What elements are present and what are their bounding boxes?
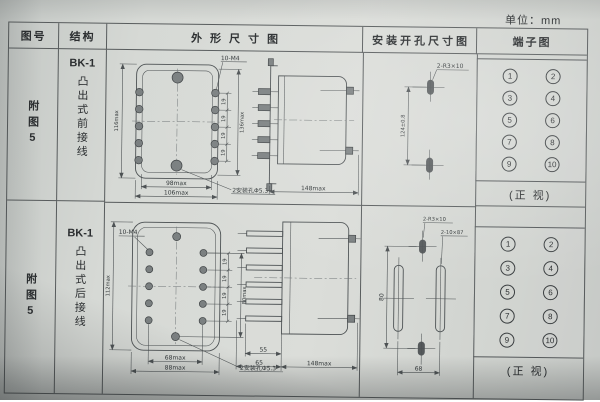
- svg-text:55: 55: [259, 347, 267, 354]
- svg-text:19: 19: [221, 132, 227, 139]
- terminal-number: 9: [499, 333, 514, 348]
- terminal-number: 1: [503, 68, 518, 83]
- svg-text:88max: 88max: [165, 364, 186, 371]
- terminal-number: 2: [544, 237, 559, 252]
- dim-width-inner: 68max: [148, 324, 202, 365]
- row2-install-drawing: 80 68 2-R3×10 2-10×87: [359, 205, 476, 398]
- svg-text:2安装孔Φ5.3: 2安装孔Φ5.3: [232, 186, 268, 194]
- terminal-number: 4: [543, 261, 558, 276]
- svg-text:106max: 106max: [164, 189, 189, 196]
- terminal-number: 8: [543, 309, 558, 324]
- svg-text:2-R3×10: 2-R3×10: [437, 63, 464, 70]
- dim-height-right: 80max: [179, 253, 248, 338]
- dim-hole-pitch: 124±0.8: [400, 87, 426, 165]
- row1-terminal-diagram: 1 2 3 4 5 6 7 8 9 10 (正 视): [475, 54, 587, 207]
- svg-text:19: 19: [222, 292, 228, 299]
- svg-text:10-M4: 10-M4: [119, 229, 138, 236]
- svg-text:148max: 148max: [301, 185, 326, 192]
- terminal-number: 10: [542, 333, 557, 348]
- row1-structure: BK-1 凸出式前接线: [57, 49, 107, 202]
- terminal-number: 6: [543, 285, 558, 300]
- svg-text:65: 65: [255, 360, 263, 367]
- svg-text:19: 19: [221, 98, 227, 105]
- rear-pins: [237, 231, 283, 322]
- label-screws: 10-M4: [216, 55, 246, 89]
- label-install-holes: 2-R3×10: [433, 63, 469, 80]
- terminal-number: 7: [502, 134, 517, 149]
- row1-fig-no: 附图5: [7, 49, 59, 202]
- terminal-number: 2: [546, 69, 561, 84]
- svg-text:19: 19: [222, 275, 228, 282]
- terminal-caption: (正 视): [509, 186, 552, 203]
- mount-hole-bottom: [171, 160, 182, 171]
- svg-text:136max: 136max: [239, 112, 245, 133]
- terminal-box: 1 2 3 4 5 6 7 8 9 10: [473, 226, 585, 358]
- relay-side-view: 55 65 148max: [236, 221, 361, 371]
- label-mount-holes: 2安装孔Φ5.3: [181, 170, 275, 195]
- label-mount-holes: 2安装孔Φ5.3: [179, 340, 283, 373]
- row2-outline-svg: 10-M4 112max 19: [103, 202, 361, 397]
- relay-side-view: 148max: [251, 59, 360, 196]
- dim-pin-overall: 65: [236, 320, 282, 370]
- terminal-caption: (正 视): [507, 363, 550, 380]
- side-mount-studs: [318, 235, 361, 323]
- dim-pin-length: 55: [245, 323, 282, 370]
- svg-text:112max: 112max: [105, 275, 111, 296]
- left-terminal-screws: [145, 249, 153, 324]
- svg-text:19: 19: [222, 258, 228, 265]
- row1-install-drawing: 124±0.8 2-R3×10: [361, 53, 478, 207]
- row2-structure: BK-1 凸出式后接线: [55, 201, 105, 394]
- svg-text:80max: 80max: [242, 286, 248, 304]
- svg-text:68: 68: [415, 366, 423, 373]
- mount-hole-bottom: [171, 333, 179, 341]
- svg-text:2-R3×10: 2-R3×10: [423, 217, 446, 223]
- label-big-slots: 2-10×87: [440, 230, 467, 264]
- header-structure: 结构: [59, 23, 107, 50]
- row1-outline-drawing: 116max 19 19 19 19: [105, 50, 364, 206]
- header-fig-no: 图号: [9, 23, 59, 50]
- svg-text:2-10×87: 2-10×87: [441, 230, 464, 236]
- right-terminal-screws: [199, 249, 207, 324]
- svg-text:19: 19: [222, 309, 228, 316]
- row2-model-label: BK-1: [67, 227, 93, 239]
- row2-terminal-diagram: 1 2 3 4 5 6 7 8 9 10 (正 视): [473, 206, 585, 399]
- row1-structure-label: 凸出式前接线: [73, 75, 90, 159]
- mount-hole-top: [173, 233, 181, 241]
- dim-terminal-pitch: 19 19 19 19: [219, 92, 232, 163]
- row2-structure-label: 凸出式后接线: [71, 245, 88, 329]
- spec-table: 图号 结构 外形尺寸图 安装开孔尺寸图 端子图 附图5 BK-1 凸出式前接线: [4, 22, 589, 401]
- svg-text:98max: 98max: [166, 180, 187, 187]
- svg-text:68max: 68max: [165, 354, 186, 361]
- header-terminal-diagram: 端子图: [477, 28, 587, 55]
- install-hole-top: [408, 230, 436, 261]
- install-slot-right: [425, 258, 456, 340]
- svg-text:116max: 116max: [114, 110, 120, 131]
- terminal-number: 4: [545, 91, 560, 106]
- terminal-box: 1 2 3 4 5 6 7 8 9 10: [475, 58, 587, 182]
- mount-hole-top: [172, 72, 183, 83]
- terminal-number: 6: [545, 113, 560, 128]
- svg-text:19: 19: [221, 149, 227, 156]
- dim-hole-pitch-vertical: 80: [378, 246, 417, 348]
- install-hole-top: [412, 71, 444, 101]
- terminal-number: 10: [544, 157, 559, 172]
- row1-install-svg: 124±0.8 2-R3×10: [361, 53, 477, 206]
- terminal-number: 3: [500, 261, 515, 276]
- install-slot-left: [383, 257, 414, 339]
- terminal-number: 3: [502, 90, 517, 105]
- header-outline-dims: 外形尺寸图: [107, 24, 363, 53]
- dim-depth: 148max: [281, 322, 358, 371]
- svg-text:124±0.8: 124±0.8: [400, 115, 406, 138]
- row1-outline-svg: 116max 19 19 19 19: [105, 50, 363, 205]
- row2-outline-drawing: 10-M4 112max 19: [103, 202, 362, 397]
- svg-text:19: 19: [221, 115, 227, 122]
- svg-text:148max: 148max: [307, 360, 332, 367]
- row2-fig-no: 附图5: [5, 201, 57, 394]
- document-sheet: 单位：mm 图号 结构 外形尺寸图 安装开孔尺寸图 端子图 附图5 BK-1 凸…: [3, 5, 592, 402]
- row2-install-svg: 80 68 2-R3×10 2-10×87: [359, 205, 475, 398]
- terminal-number: 7: [500, 309, 515, 324]
- row1-model-label: BK-1: [69, 57, 95, 69]
- install-hole-bottom: [411, 149, 443, 179]
- terminal-number: 5: [500, 285, 515, 300]
- row1-fig-label: 附图5: [24, 100, 41, 149]
- terminal-number: 9: [501, 156, 516, 171]
- terminal-number: 5: [502, 112, 517, 127]
- svg-text:80: 80: [378, 293, 385, 301]
- side-terminal-screws: [252, 89, 279, 159]
- terminal-number: 8: [545, 135, 560, 150]
- row2-fig-label: 附图5: [22, 272, 39, 321]
- unit-label: 单位：mm: [505, 12, 562, 29]
- header-install-dims: 安装开孔尺寸图: [363, 27, 477, 54]
- dim-width-inner: 98max: [141, 174, 211, 190]
- label-screws: 10-M4: [119, 229, 148, 249]
- install-hole-bottom: [407, 333, 435, 364]
- relay-front-view: 116max 19 19 19 19: [113, 54, 277, 200]
- photo-background: 单位：mm 图号 结构 外形尺寸图 安装开孔尺寸图 端子图 附图5 BK-1 凸…: [0, 0, 600, 400]
- terminal-number: 1: [501, 237, 516, 252]
- svg-text:10-M4: 10-M4: [221, 55, 240, 62]
